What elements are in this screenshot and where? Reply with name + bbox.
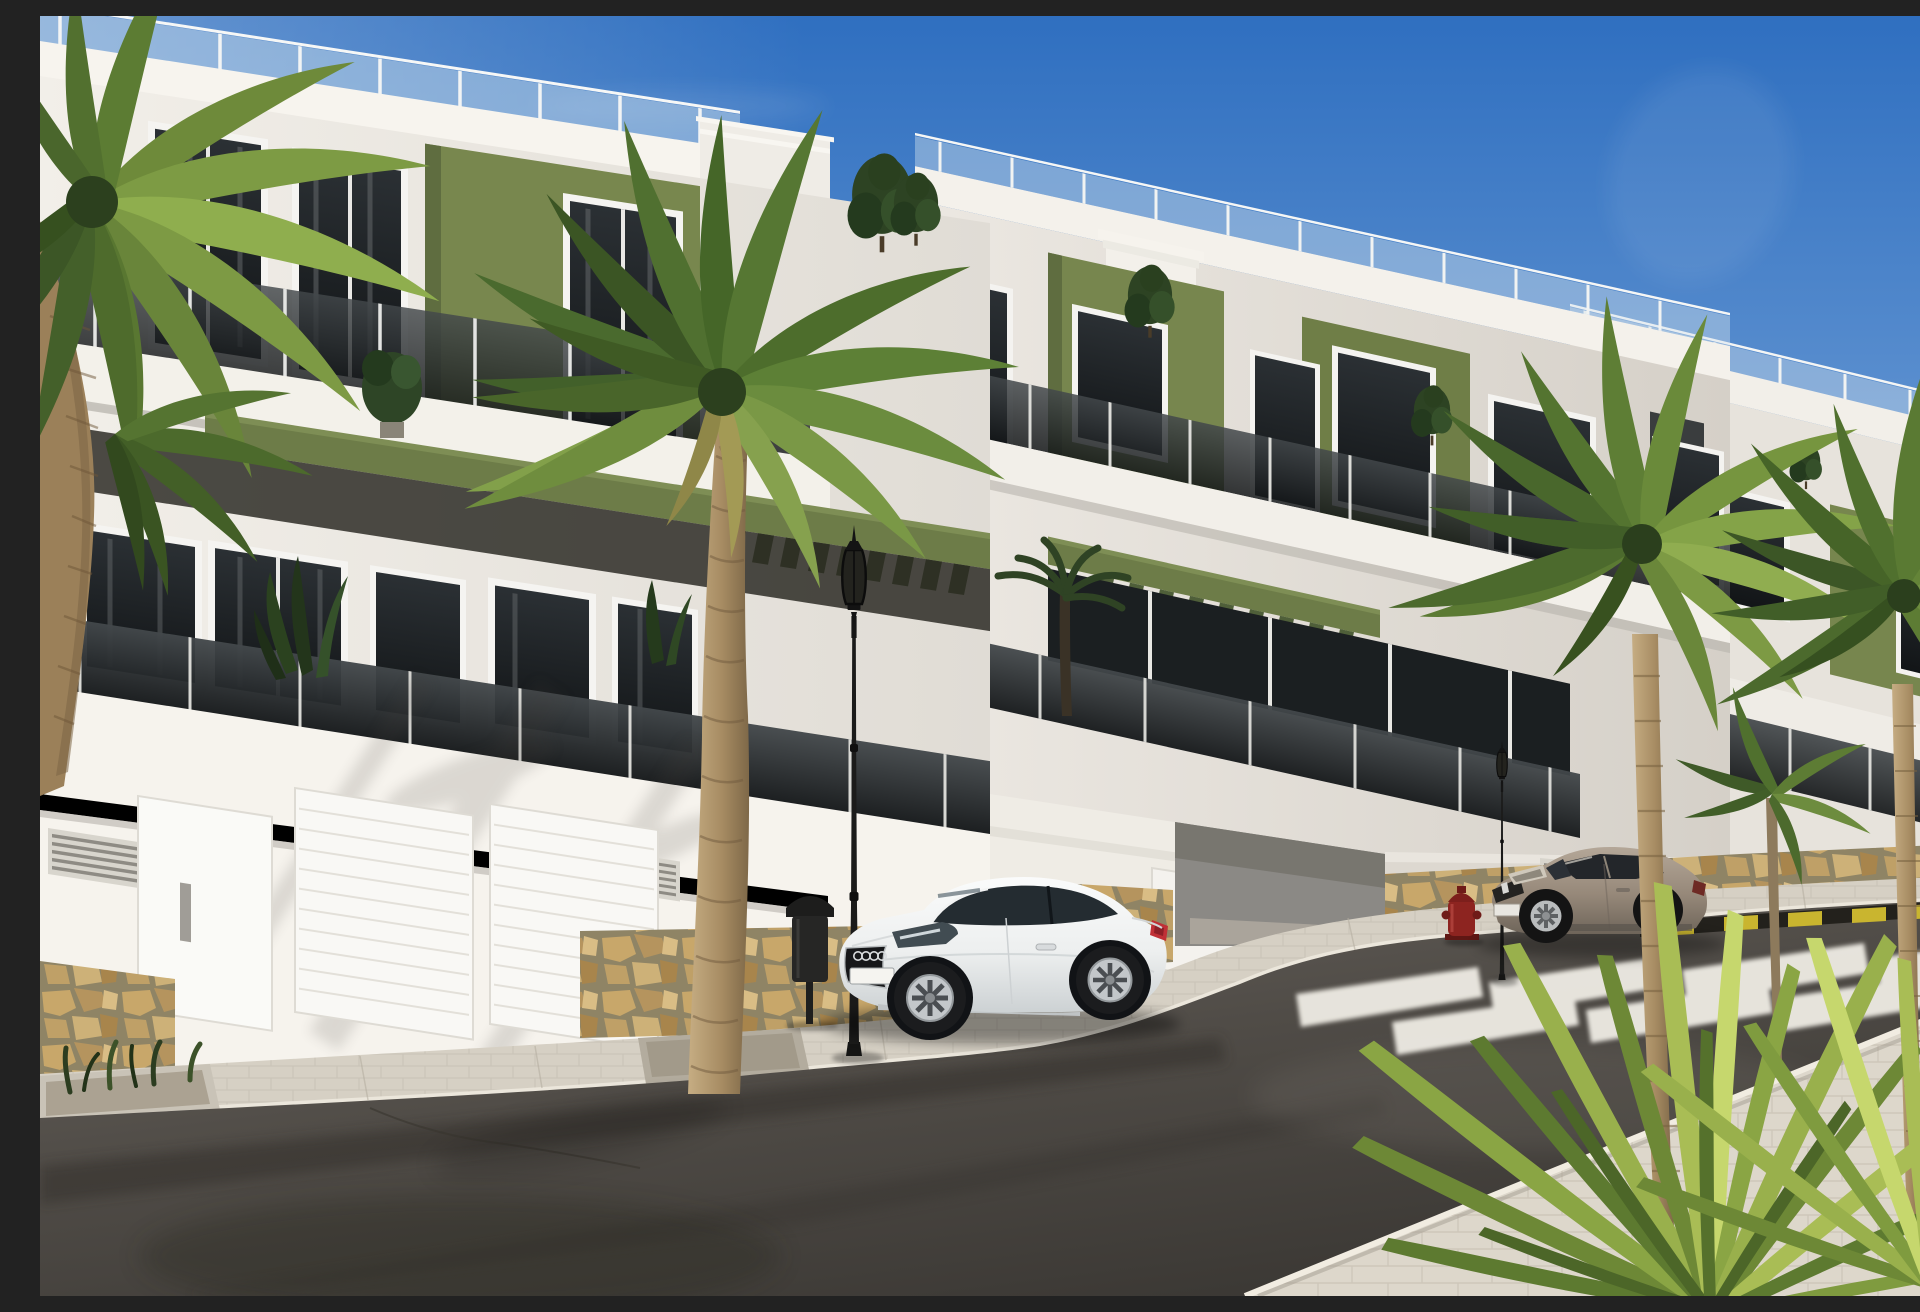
architectural-render: Sunny street view of a new-build modern … (40, 16, 1920, 1296)
garage-door (295, 788, 473, 1040)
